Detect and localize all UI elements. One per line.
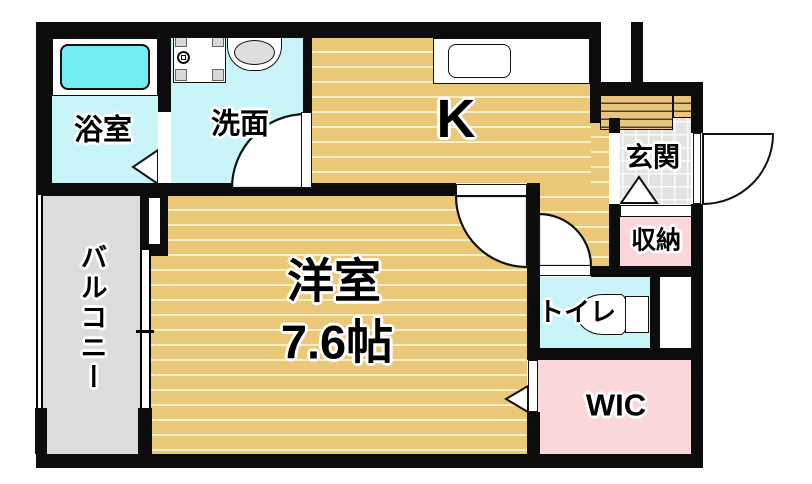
- kitchen-counter: [433, 38, 590, 84]
- wall-washroom-kitchen: [303, 22, 312, 112]
- bathtub-icon: [60, 44, 150, 90]
- balcony-fence: [36, 195, 43, 408]
- balcony-window-tick: [136, 330, 154, 333]
- kitchen-label: K: [437, 92, 476, 146]
- storage-label: 収納: [631, 229, 681, 254]
- wic-label: WIC: [586, 390, 646, 421]
- toilet-door-leaf: [539, 265, 591, 276]
- wall-storage-bottom: [591, 266, 692, 277]
- wall-kitchen-east: [590, 38, 601, 123]
- entrance-label: 玄関: [626, 145, 680, 172]
- wall-balcony-corner: [35, 408, 47, 454]
- entrance-doorway: [609, 133, 620, 204]
- wall-wic-top: [527, 348, 703, 360]
- washroom-label: 洗面: [211, 111, 269, 140]
- balcony-label: バルコニー: [78, 243, 105, 393]
- wall-east-lower: [527, 412, 540, 454]
- wall-right-main: [691, 204, 703, 468]
- drain-icon: [177, 51, 190, 64]
- hallway-floor-lower: [540, 183, 609, 266]
- toilet-tank-icon: [625, 296, 649, 333]
- washroom-door-leaf: [301, 112, 312, 188]
- floor-plan: 浴室 洗面 K 玄関 収納 トイレ WIC 洋室 7.6帖 バルコニー: [0, 0, 812, 484]
- slot-window: [149, 198, 160, 244]
- western-room-label: 洋室: [287, 258, 381, 305]
- entrance-step-side: [673, 95, 693, 118]
- bathroom-label: 浴室: [74, 117, 132, 146]
- wall-bottom: [36, 454, 703, 468]
- kitchen-room-door-leaf: [456, 184, 527, 196]
- wall-wet-area-south: [36, 183, 456, 196]
- wall-right-upper: [691, 95, 703, 133]
- balcony-window: [140, 250, 151, 408]
- wall-top: [36, 22, 601, 38]
- wic-door-leaf: [528, 360, 538, 412]
- wall-left: [36, 22, 52, 196]
- wall-entrance-top: [600, 82, 703, 95]
- wall-toilet-right: [650, 277, 660, 348]
- front-door-swing-arc: [703, 134, 773, 204]
- wall-entrance-left: [609, 118, 620, 133]
- front-door-leaf: [693, 133, 701, 204]
- washing-machine-pan-icon: [173, 33, 226, 83]
- wall-bath-washroom: [158, 22, 171, 112]
- kitchen-sink-icon: [448, 44, 511, 78]
- wall-storage-left: [609, 204, 620, 277]
- storage-door-leaf: [620, 205, 692, 217]
- bathroom-doorway: [158, 112, 171, 183]
- wall-balcony-lower: [138, 408, 152, 454]
- hallway-floor-upper: [591, 123, 611, 183]
- western-room-size-label: 7.6帖: [281, 319, 393, 366]
- toilet-label: トイレ: [538, 299, 616, 325]
